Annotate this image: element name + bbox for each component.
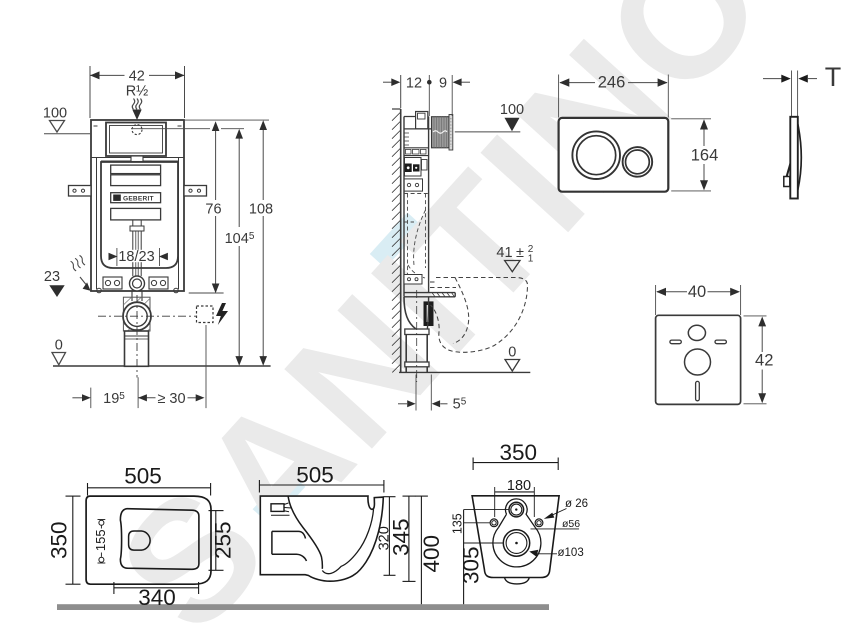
svg-text:42: 42	[755, 352, 773, 370]
svg-text:155: 155	[93, 529, 108, 551]
svg-text:41: 41	[496, 245, 512, 261]
svg-text:R½: R½	[126, 83, 149, 99]
svg-text:GEBERIT: GEBERIT	[123, 196, 154, 203]
svg-text:505: 505	[296, 462, 334, 487]
svg-text:108: 108	[249, 201, 273, 217]
svg-text:0: 0	[508, 345, 516, 361]
svg-text:345: 345	[389, 518, 414, 556]
svg-text:100: 100	[43, 105, 67, 121]
svg-text:ø103: ø103	[558, 547, 584, 559]
svg-text:350: 350	[47, 521, 72, 559]
svg-text:255: 255	[211, 521, 236, 559]
svg-text:42: 42	[129, 68, 145, 84]
svg-text:55: 55	[453, 397, 467, 413]
svg-text:23: 23	[44, 269, 60, 285]
svg-text:180: 180	[507, 478, 531, 494]
svg-text:400: 400	[419, 535, 444, 573]
svg-text:164: 164	[691, 147, 719, 165]
svg-text:1045: 1045	[225, 231, 255, 247]
svg-text:305: 305	[459, 546, 484, 584]
svg-text:135: 135	[451, 513, 465, 534]
svg-text:ø 26: ø 26	[565, 498, 588, 510]
svg-text:ø56: ø56	[562, 518, 580, 530]
svg-text:100: 100	[500, 102, 524, 118]
svg-text:246: 246	[598, 74, 626, 92]
svg-text:76: 76	[205, 201, 221, 217]
svg-text:T: T	[825, 62, 842, 92]
svg-text:40: 40	[688, 283, 706, 301]
svg-text:0: 0	[55, 338, 63, 354]
svg-text:18/23: 18/23	[118, 249, 154, 265]
svg-text:505: 505	[124, 464, 162, 489]
svg-text:≥ 30: ≥ 30	[157, 391, 185, 407]
svg-text:195: 195	[103, 391, 125, 407]
svg-text:12: 12	[406, 76, 422, 92]
svg-text:9: 9	[439, 76, 447, 92]
svg-text:340: 340	[138, 585, 176, 610]
svg-text:1: 1	[528, 254, 534, 265]
svg-text:±: ±	[516, 245, 524, 261]
svg-text:350: 350	[500, 440, 538, 465]
